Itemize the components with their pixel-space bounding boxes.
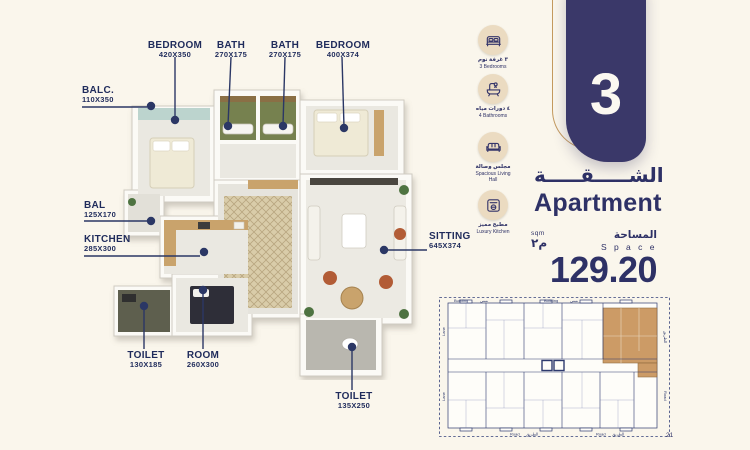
svg-text:الطريق: الطريق: [663, 331, 668, 343]
amenity-bedrooms: ٣ غرفة نوم 3 Bedrooms: [460, 25, 526, 70]
unit-tab: 3: [566, 0, 646, 162]
svg-text:Road: Road: [596, 432, 606, 437]
svg-text:Road: Road: [663, 391, 668, 401]
svg-text:مبنى: مبنى: [480, 298, 488, 303]
key-plan: Building مبنى Building مبنى Road الطريق …: [438, 296, 672, 440]
svg-text:Building: Building: [544, 298, 558, 303]
room-label-bedroom-1: BEDROOM 420X350: [138, 40, 212, 60]
svg-text:Road: Road: [510, 432, 520, 437]
title-arabic: الشـــــقـــــة: [534, 163, 656, 188]
room-label-bal: BAL 125X170: [84, 200, 154, 220]
title-english: Apartment: [534, 189, 656, 218]
room-label-bath-2: BATH 270X175: [257, 40, 313, 60]
svg-text:Lane: Lane: [441, 326, 446, 336]
brochure-page: BEDROOM 420X350 BATH 270X175 BATH 270X17…: [0, 0, 750, 450]
room-label-bedroom-2: BEDROOM 400X374: [306, 40, 380, 60]
amenity-kitchen: مطبخ مميز Luxury Kitchen: [460, 190, 526, 235]
bed-icon: [478, 25, 508, 55]
amenity-bathrooms: ٤ دورات مياه 4 Bathrooms: [460, 74, 526, 119]
sqm-unit: sqm م٢: [531, 230, 547, 249]
svg-text:Building: Building: [454, 298, 468, 303]
room-label-bath-1: BATH 270X175: [203, 40, 259, 60]
sofa-icon: [478, 132, 508, 162]
room-label-room: ROOM 260X300: [171, 350, 235, 370]
svg-text:الطريق: الطريق: [612, 432, 624, 437]
room-label-toilet-2: TOILET 135X250: [322, 391, 386, 411]
floorplan-render: [98, 80, 448, 380]
page-number: 21: [666, 432, 673, 439]
room-label-balcony: BALC. 110X350: [82, 85, 152, 105]
amenity-living-hall: مجلس وصالة Spacious Living Hall: [460, 132, 526, 183]
room-label-kitchen: KITCHEN 285X300: [84, 234, 164, 254]
svg-text:الطريق: الطريق: [526, 432, 538, 437]
svg-text:Lane: Lane: [441, 391, 446, 401]
unit-number: 3: [590, 66, 622, 124]
room-label-sitting: SITTING 645X374: [429, 231, 489, 251]
room-label-toilet-1: TOILET 130X185: [114, 350, 178, 370]
kitchen-icon: [478, 190, 508, 220]
bathtub-icon: [478, 74, 508, 104]
svg-text:مبنى: مبنى: [570, 298, 578, 303]
area-value: 129.20: [525, 249, 657, 291]
